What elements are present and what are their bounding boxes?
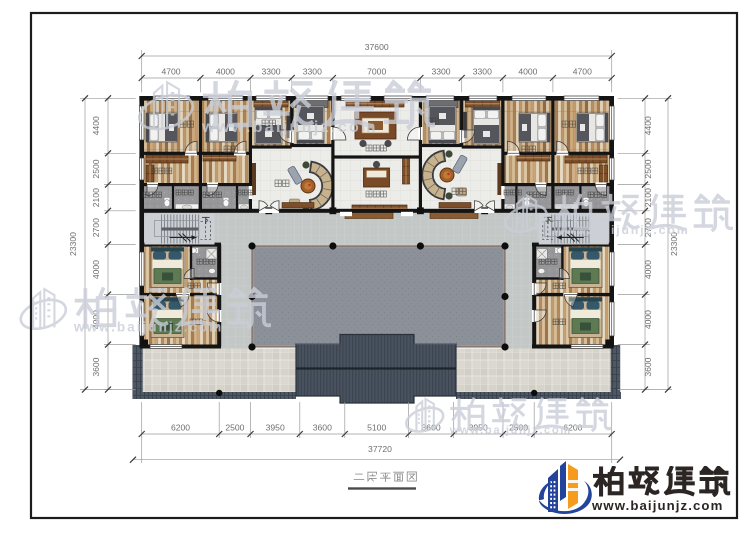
svg-text:2500: 2500 — [643, 159, 653, 178]
svg-text:3950: 3950 — [266, 423, 285, 433]
svg-text:3300: 3300 — [303, 67, 322, 77]
svg-text:4000: 4000 — [216, 67, 235, 77]
svg-text:3600: 3600 — [643, 357, 653, 376]
svg-text:www.baijunjz.com: www.baijunjz.com — [591, 498, 723, 513]
svg-text:6200: 6200 — [171, 423, 190, 433]
svg-text:4000: 4000 — [643, 310, 653, 329]
svg-text:4700: 4700 — [161, 67, 180, 77]
svg-text:3300: 3300 — [431, 67, 450, 77]
svg-text:2500: 2500 — [91, 159, 101, 178]
svg-text:www.baijunjz.com: www.baijunjz.com — [553, 223, 690, 237]
svg-text:4000: 4000 — [91, 260, 101, 279]
svg-text:4400: 4400 — [91, 116, 101, 135]
svg-text:2100: 2100 — [91, 188, 101, 207]
svg-text:www.baijunjz.com: www.baijunjz.com — [449, 425, 572, 437]
svg-text:2500: 2500 — [225, 423, 244, 433]
svg-text:23300: 23300 — [68, 232, 78, 256]
svg-text:37720: 37720 — [368, 444, 392, 454]
svg-text:5100: 5100 — [367, 423, 386, 433]
svg-text:37600: 37600 — [365, 42, 389, 52]
svg-text:3600: 3600 — [313, 423, 332, 433]
svg-text:4000: 4000 — [518, 67, 537, 77]
svg-text:4400: 4400 — [643, 116, 653, 135]
svg-text:www.baijunjz.com: www.baijunjz.com — [73, 319, 223, 334]
svg-text:7000: 7000 — [367, 67, 386, 77]
svg-text:4000: 4000 — [643, 260, 653, 279]
svg-text:3300: 3300 — [261, 67, 280, 77]
svg-text:2700: 2700 — [91, 218, 101, 237]
svg-text:www.baijunjz.com: www.baijunjz.com — [201, 118, 378, 136]
svg-text:3600: 3600 — [91, 357, 101, 376]
svg-text:3300: 3300 — [473, 67, 492, 77]
svg-text:4700: 4700 — [573, 67, 592, 77]
